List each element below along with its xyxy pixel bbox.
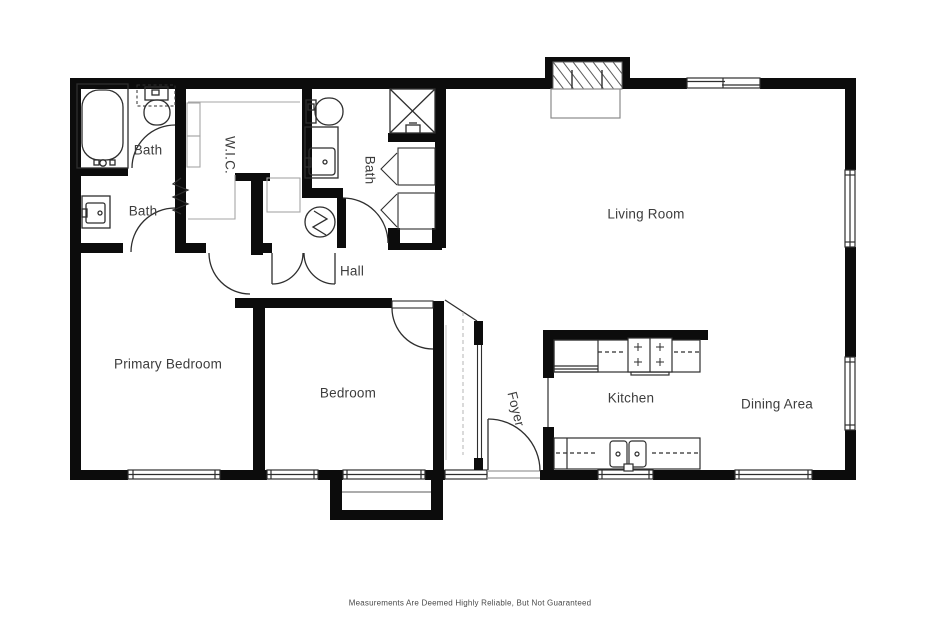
closet-shelves <box>398 148 435 185</box>
room-label-hall: Hall <box>340 264 364 279</box>
closet-shelves <box>398 193 435 229</box>
door-arc <box>304 253 335 284</box>
room-label-primary-bedroom: Primary Bedroom <box>114 357 222 372</box>
door-sill <box>487 471 540 478</box>
room-label-bath-1: Bath <box>134 143 163 158</box>
closet-shelves <box>187 103 200 136</box>
room-label-wic: W.I.C. <box>223 136 238 174</box>
room-label-bath-3: Bath <box>363 156 378 185</box>
room-label-bath-2: Bath <box>129 204 158 219</box>
door-arc <box>272 253 303 284</box>
sliding-door <box>478 345 482 458</box>
counter <box>554 340 700 372</box>
room-label-dining-area: Dining Area <box>741 397 813 412</box>
window <box>845 357 855 430</box>
foyer-closet <box>445 300 483 470</box>
room-label-bedroom: Bedroom <box>320 386 376 401</box>
kitchen-sink-icon <box>610 441 646 471</box>
bedroom-door <box>392 301 433 349</box>
window <box>267 470 318 479</box>
bath2-fixtures <box>82 196 110 228</box>
closet-shelves <box>187 136 200 167</box>
utility-closet <box>267 178 335 237</box>
floor-plan-canvas: Bath Bath W.I.C. Bath Hall Living Room P… <box>0 0 940 630</box>
refrigerator-icon <box>554 340 598 372</box>
window <box>343 470 425 479</box>
porch <box>330 480 443 520</box>
window <box>128 470 220 479</box>
window <box>445 470 487 479</box>
fireplace-icon <box>540 57 636 118</box>
shower-icon <box>390 89 435 133</box>
bathtub-icon <box>77 84 128 168</box>
water-heater-icon <box>305 207 335 237</box>
door-arc <box>209 253 250 294</box>
range-icon <box>628 338 672 375</box>
room-label-living-room: Living Room <box>607 207 684 222</box>
floor-plan-drawing <box>0 0 940 630</box>
window <box>845 170 855 247</box>
sink-icon <box>82 196 110 228</box>
disclaimer-text: Measurements Are Deemed Highly Reliable,… <box>349 599 592 608</box>
appliance <box>267 178 300 212</box>
double-door <box>272 253 335 284</box>
linen-closet <box>381 148 435 229</box>
wic-shelving <box>187 102 300 219</box>
interior-walls <box>70 78 708 470</box>
window <box>687 78 760 88</box>
hearth <box>551 89 620 118</box>
door-arc <box>343 198 388 243</box>
toilet-icon <box>137 85 175 125</box>
window <box>735 470 812 479</box>
room-label-kitchen: Kitchen <box>608 391 654 406</box>
door-arc <box>392 308 433 349</box>
